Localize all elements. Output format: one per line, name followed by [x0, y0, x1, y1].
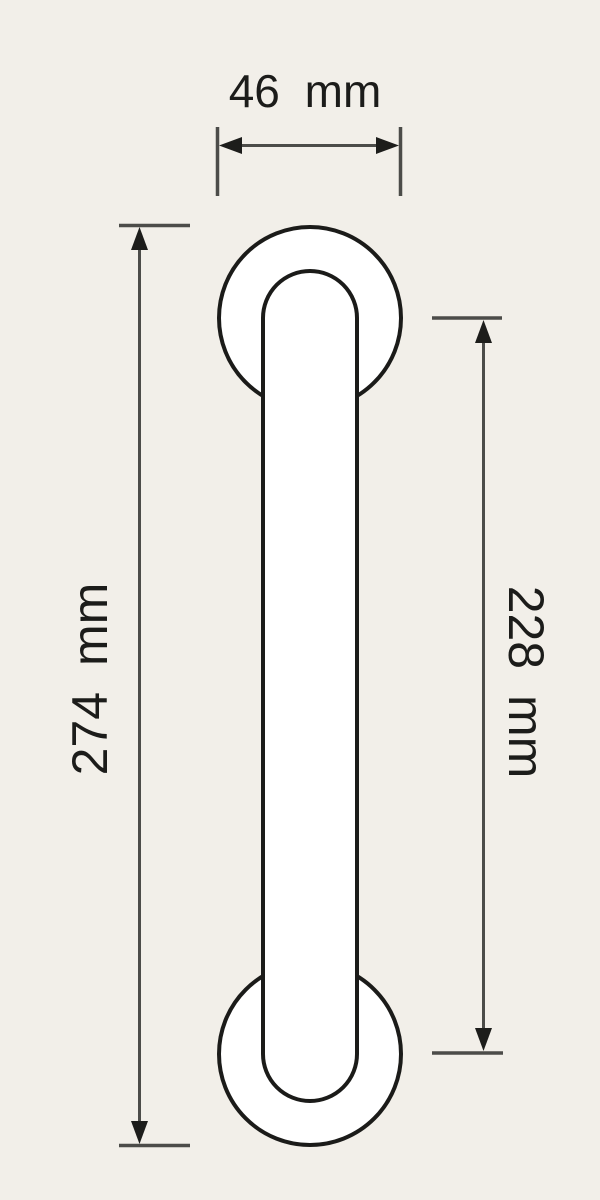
- overall-length-dimension-label: 274 mm: [62, 583, 118, 776]
- arrowhead-up-icon: [131, 227, 148, 250]
- handle-technical-drawing: 46 mm 274 mm 228 mm: [0, 0, 600, 1200]
- handle-part: [219, 227, 401, 1145]
- dimension-width: 46 mm: [218, 65, 401, 196]
- fixing-centers-dimension-label: 228 mm: [498, 586, 554, 779]
- arrowhead-down-icon: [475, 1028, 492, 1051]
- dimension-fixing-centers: 228 mm: [432, 318, 554, 1053]
- arrowhead-left-icon: [219, 137, 242, 154]
- arrowhead-right-icon: [376, 137, 399, 154]
- drawing-canvas: 46 mm 274 mm 228 mm: [0, 0, 600, 1200]
- arrowhead-down-icon: [131, 1121, 148, 1144]
- handle-grip-bar: [263, 271, 357, 1101]
- width-dimension-label: 46 mm: [229, 65, 382, 117]
- dimension-overall-length: 274 mm: [62, 226, 190, 1146]
- arrowhead-up-icon: [475, 320, 492, 343]
